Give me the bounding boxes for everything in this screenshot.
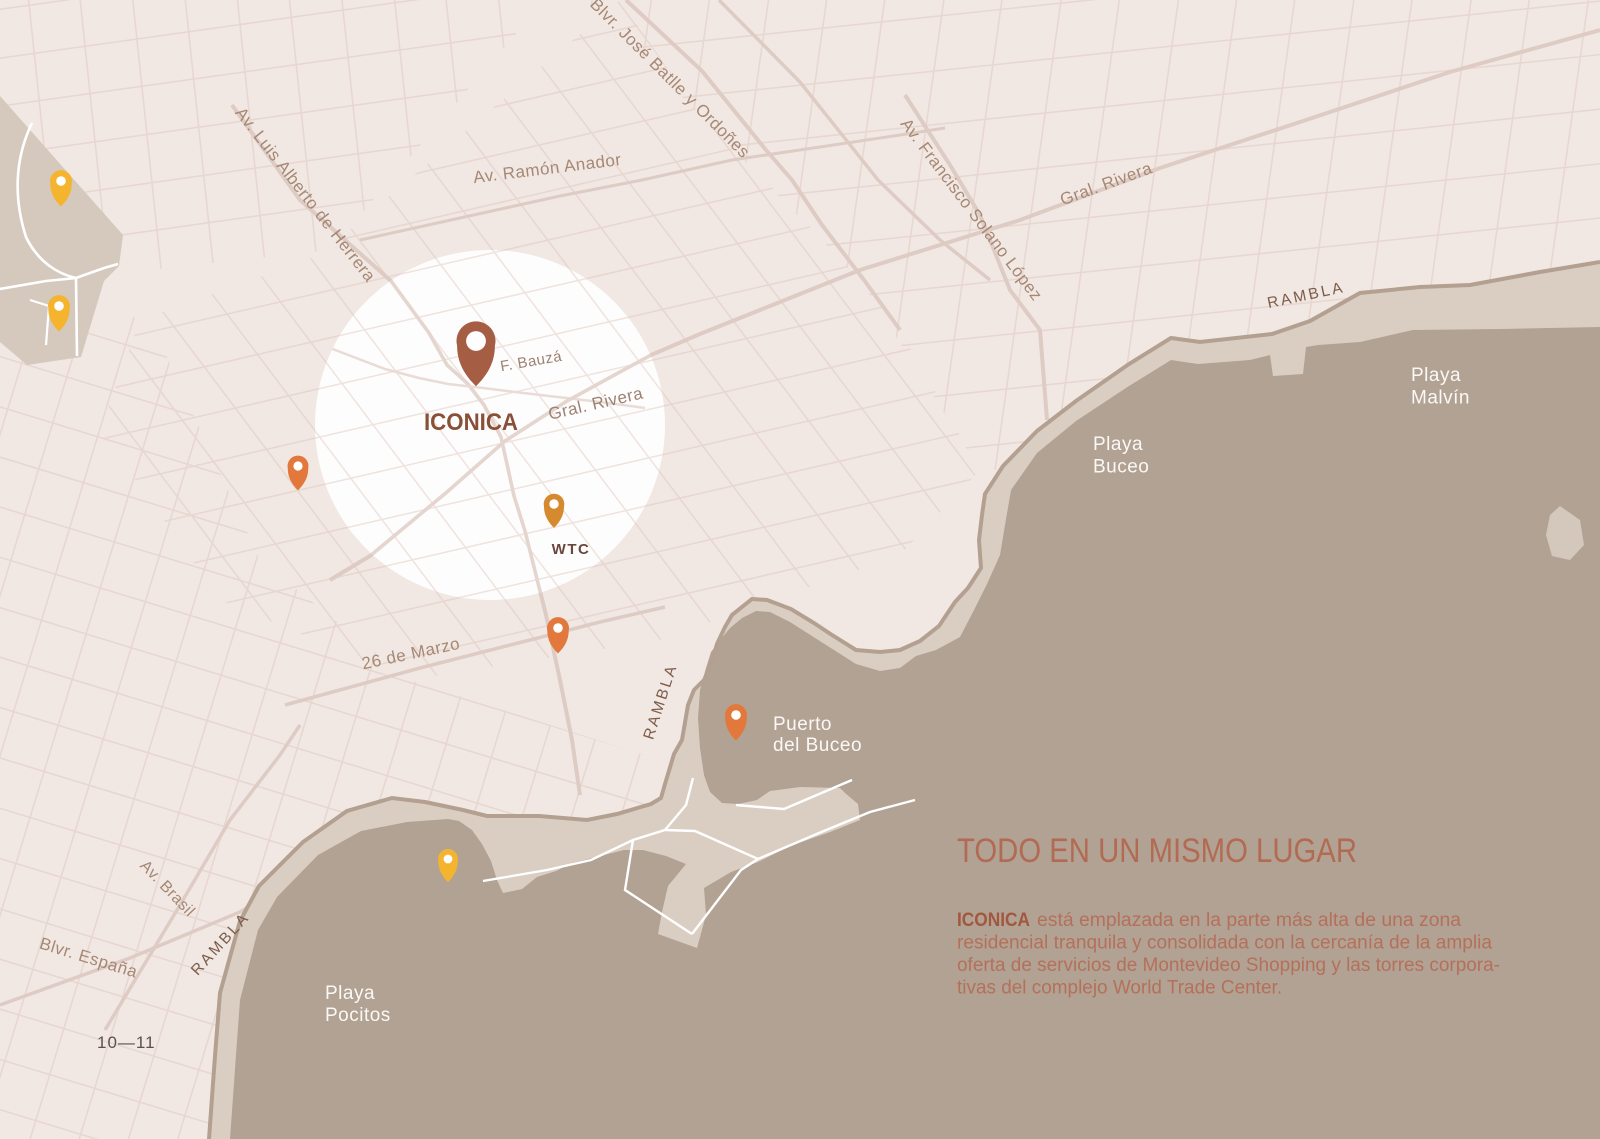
svg-text:TODO EN UN MISMO LUGAR: TODO EN UN MISMO LUGAR bbox=[957, 832, 1357, 870]
svg-text:WTC: WTC bbox=[552, 541, 591, 558]
svg-text:ICONICA: ICONICA bbox=[424, 409, 518, 436]
svg-text:ICONICA: ICONICA bbox=[957, 910, 1030, 931]
svg-text:oferta de servicios de Montevi: oferta de servicios de Montevideo Shoppi… bbox=[957, 955, 1500, 976]
svg-text:residencial tranquila y consol: residencial tranquila y consolidada con … bbox=[957, 933, 1492, 954]
svg-text:PlayaBuceo: PlayaBuceo bbox=[1093, 434, 1149, 478]
svg-text:tivas del complejo World Trade: tivas del complejo World Trade Center. bbox=[957, 978, 1282, 999]
svg-text:10—11: 10—11 bbox=[97, 1033, 156, 1052]
svg-text:está emplazada en la parte más: está emplazada en la parte más alta de u… bbox=[1037, 910, 1461, 931]
